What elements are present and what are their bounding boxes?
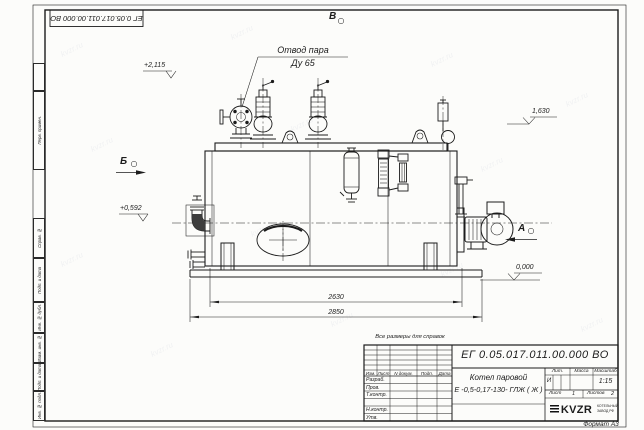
feed-elbow — [186, 196, 214, 236]
change-header-ndoc: N докум. — [390, 371, 417, 376]
company-logo: KVZR — [546, 399, 596, 420]
sheets-label: Листов — [587, 391, 604, 396]
margin-cell-label: Перв. примен. — [37, 116, 42, 145]
drain-stubs — [188, 250, 205, 270]
margin-cell: Перв. примен. — [33, 91, 45, 170]
margin-cell-label: Инв. № подл. — [37, 392, 42, 419]
water-gauge — [378, 150, 408, 196]
logo-caption-2: ЗАВОД РФ — [597, 409, 614, 413]
role-tkontr: Т.контр. — [366, 392, 387, 398]
margin-cell-label: Справ. № — [37, 228, 42, 248]
callout-line1: Отвод пара — [258, 45, 348, 55]
lit-value: И — [545, 378, 553, 384]
change-header-list: Лист — [377, 371, 390, 376]
shell-seams — [212, 151, 450, 266]
sheet-label: Лист — [549, 391, 561, 396]
callout-line2: Ду 65 — [258, 58, 348, 68]
margin-cell-label: Инв. № дубл. — [37, 304, 42, 331]
change-header-podp: Подп. — [417, 371, 437, 376]
product-name-line2: Е -0,5-0,17-130- ГЛЖ ( Ж ) — [452, 385, 545, 394]
level-column — [340, 148, 359, 202]
scale-label: Масштаб — [593, 369, 618, 374]
margin-cell: Справ. № — [33, 218, 45, 258]
dim-2850: 2850 — [316, 309, 356, 316]
burner — [457, 202, 513, 252]
lifting-lugs — [282, 130, 428, 143]
product-name-line1: Котел паровой — [452, 373, 545, 382]
centerlines — [172, 78, 552, 261]
drawing-sheet: kvzr.ru kvzr.ru kvzr.ru kvzr.ru kvzr.ru … — [0, 0, 644, 430]
view-label-v: В — [329, 11, 336, 22]
sheet-frame — [33, 5, 626, 427]
skid-base — [190, 243, 482, 277]
margin-cell: Инв. № дубл. — [33, 302, 45, 333]
margin-cell: Подп. и дата — [33, 258, 45, 302]
mass-label: Масса — [570, 369, 593, 374]
change-header-data: Дата — [437, 371, 452, 376]
logo-icon — [550, 405, 559, 414]
role-razrab: Разраб. — [366, 377, 385, 383]
reference-note: Все размеры для справок — [366, 334, 454, 340]
level-zero: 0,000 — [516, 264, 534, 271]
sheet-value: 1 — [572, 391, 575, 397]
designation: ЕГ 0.05.017.011.00.000 ВО — [452, 349, 618, 361]
rotated-designation: ЕГ 0.05.017.011.00.000 ВО — [50, 10, 143, 26]
view-label-a: А — [518, 223, 525, 234]
role-utv: Утв. — [366, 415, 378, 421]
margin-cell-blank — [33, 63, 45, 91]
margin-cell: Взам. инв. № — [33, 333, 45, 363]
level-marks — [119, 71, 557, 280]
margin-cell-label: Взам. инв. № — [37, 335, 42, 362]
margin-cell: Подп. и дата — [33, 363, 45, 391]
sheets-value: 2 — [611, 391, 614, 397]
role-nkontr: Н.контр. — [366, 407, 388, 413]
view-label-b: Б — [120, 156, 127, 167]
level-top: +2,115 — [144, 62, 165, 69]
role-prov: Пров. — [366, 385, 380, 391]
level-right: 1,630 — [532, 108, 550, 115]
margin-cell-label: Подп. и дата — [37, 267, 42, 294]
steam-valve — [220, 99, 252, 138]
level-mid: +0,592 — [120, 205, 142, 212]
margin-cell: Инв. № подл. — [33, 391, 45, 421]
boiler-shell — [205, 143, 457, 266]
lit-label: Лит. — [545, 369, 570, 374]
change-header-izm: Изм. — [364, 371, 377, 376]
margin-cell-label: Подп. и дата — [37, 364, 42, 391]
scale-value: 1:15 — [593, 378, 618, 385]
dim-2630: 2630 — [316, 294, 356, 301]
logo-caption-1: КОТЕЛЬНЫЙ — [597, 404, 618, 408]
logo-text: KVZR — [561, 404, 592, 416]
format-label: Формат А3 — [570, 421, 632, 428]
